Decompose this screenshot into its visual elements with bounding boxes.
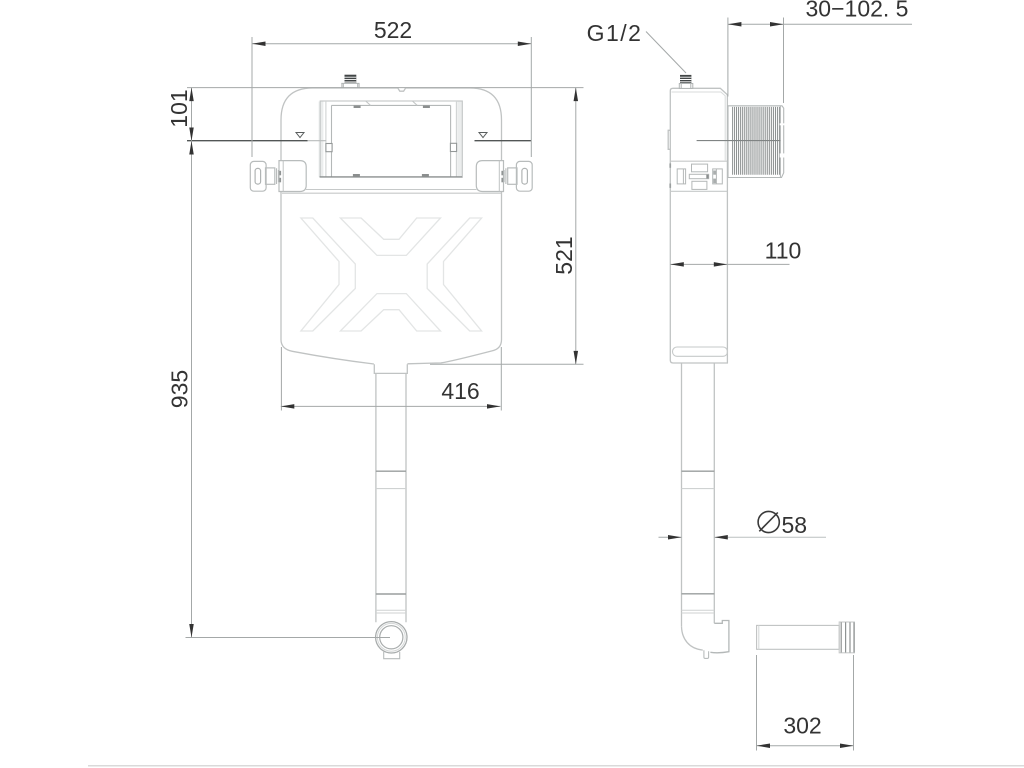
svg-text:935: 935 [167, 370, 193, 408]
svg-text:30−102. 5: 30−102. 5 [806, 0, 909, 22]
svg-text:302: 302 [783, 713, 821, 739]
svg-text:110: 110 [765, 238, 802, 264]
svg-text:58: 58 [782, 512, 808, 538]
svg-text:G1/2: G1/2 [587, 20, 643, 46]
svg-text:522: 522 [374, 17, 412, 43]
svg-text:416: 416 [441, 378, 479, 404]
svg-text:101: 101 [166, 89, 192, 127]
svg-text:521: 521 [551, 236, 577, 274]
